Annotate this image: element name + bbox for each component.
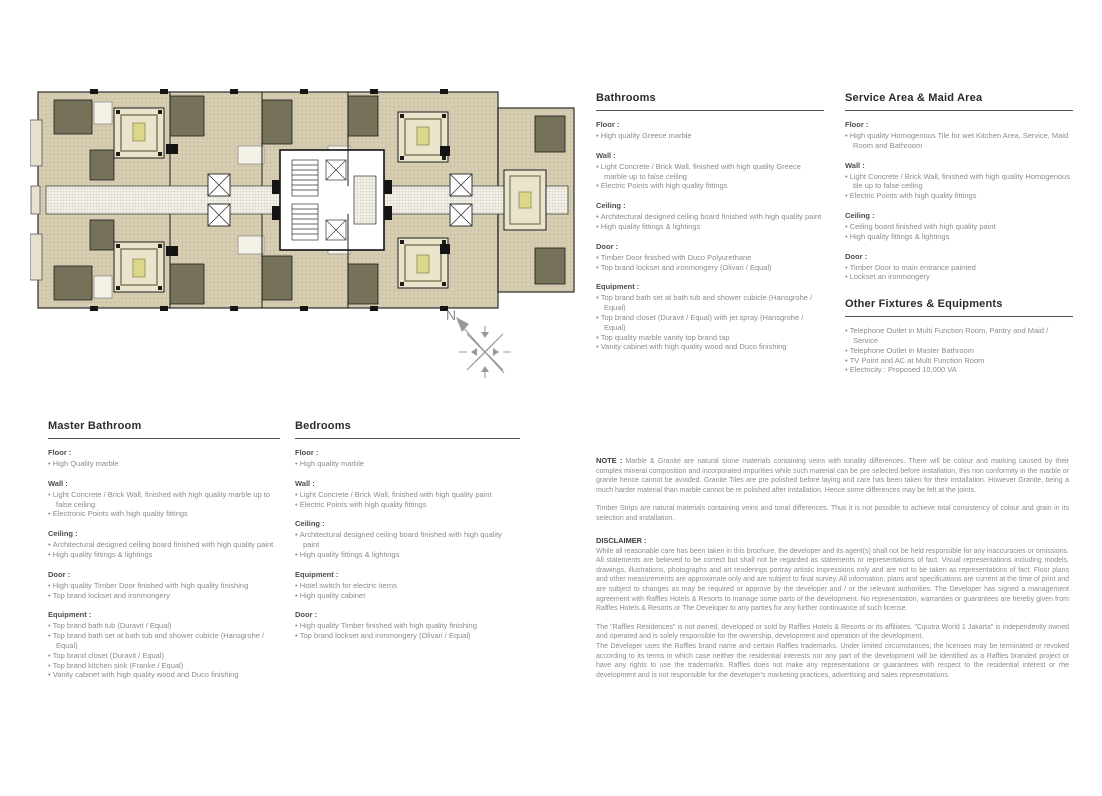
note-label: NOTE : [596,456,622,465]
spec-label: Wall : [48,479,280,489]
spec-item: Vanity cabinet with high quality wood an… [596,342,824,352]
spec-item: High quality fittings & lightings [596,222,824,232]
spec-item: Top brand bath set at bath tub and showe… [596,293,824,313]
spec-group-floor: Floor : High Quality marble [48,448,280,469]
spec-item: High quality fittings & lightings [295,550,520,560]
other-fixtures-title: Other Fixtures & Equipments [845,298,1073,317]
spec-group-door: Door : High quality Timber Door finished… [48,570,280,601]
spec-label: Wall : [295,479,520,489]
spec-item: Lockset an ironmongery [845,272,1073,282]
spec-item: Top brand closet (Duravit / Equal) with … [596,313,824,333]
spec-item: Top brand bath set at bath tub and showe… [48,631,280,651]
spec-item: Electricity : Proposed 10,000 VA [845,365,1073,375]
spec-item: Top brand lockset and ironmongery [48,591,280,601]
spec-item: Top brand closet (Duravit / Equal) [48,651,280,661]
section-bedrooms: Bedrooms Floor : High quality marble Wal… [295,420,520,651]
spec-item: Top brand bath tub (Duravit / Equal) [48,621,280,631]
spec-group-floor: Floor : High quality Greece marble [596,120,824,141]
spec-item: Light Concrete / Brick Wall, finished wi… [845,172,1073,192]
disclaimer-paragraph-3: The Developer uses the Raffles brand nam… [596,642,1069,680]
bathrooms-title: Bathrooms [596,92,824,111]
section-bathrooms: Bathrooms Floor : High quality Greece ma… [596,92,824,362]
note-paragraph-2: Timber Strips are natural materials cont… [596,504,1069,523]
master-bathroom-title: Master Bathroom [48,420,280,439]
spec-group-ceiling: Ceiling : Ceiling board finished with hi… [845,211,1073,242]
spec-item: High quality Timber Door finished with h… [48,581,280,591]
spec-group-equipment: Equipment : Hotel switch for electric it… [295,570,520,601]
spec-group-door: Door : High quality Timber finished with… [295,610,520,641]
service-area-title: Service Area & Maid Area [845,92,1073,111]
compass-icon: N [438,300,524,388]
spec-label: Door : [596,242,824,252]
spec-group-wall: Wall : Light Concrete / Brick Wall, fini… [596,151,824,191]
spec-group-door: Door : Timber Door to main entrance pain… [845,252,1073,283]
spec-group-floor: Floor : High quality marble [295,448,520,469]
spec-item: Top brand lockset and ironmongery (Oliva… [295,631,520,641]
spec-label: Ceiling : [295,519,520,529]
spec-label: Floor : [48,448,280,458]
spec-group-wall: Wall : Light Concrete / Brick Wall, fini… [295,479,520,510]
spec-item: Light Concrete / Brick Wall, finished wi… [596,162,824,182]
note-text: Marble & Granite are natural stone mater… [596,458,1069,494]
spec-label: Ceiling : [48,529,280,539]
spec-item: Top brand kitchen sink (Franke / Equal) [48,661,280,671]
spec-item: Vanity cabinet with high quality wood an… [48,670,280,680]
spec-item: High quality Timber finished with high q… [295,621,520,631]
spec-item: High quality Homogenous Tile for wet Kit… [845,131,1073,151]
spec-group-ceiling: Ceiling : Architectural designed ceiling… [48,529,280,560]
spec-group-ceiling: Ceiling : Architectural designed ceiling… [295,519,520,559]
spec-group-equipment: Equipment : Top brand bath set at bath t… [596,282,824,352]
spec-item: High quality marble [295,459,520,469]
spec-item: Architectural designed ceiling board fin… [295,530,520,550]
spec-group-wall: Wall : Light Concrete / Brick Wall, fini… [48,479,280,519]
spec-item: Top quality marble vanity top brand tap [596,333,824,343]
spec-label: Ceiling : [596,201,824,211]
spec-label: Wall : [596,151,824,161]
disclaimer-label: DISCLAIMER : [596,536,1069,545]
spec-group-equipment: Equipment : Top brand bath tub (Duravit … [48,610,280,680]
compass-north-label: N [446,307,456,323]
spec-item: Ceiling board finished with high quality… [845,222,1073,232]
spec-item: Electric Points with high quality fittin… [295,500,520,510]
spec-item: Hotel switch for electric items [295,581,520,591]
spec-group-floor: Floor : High quality Homogenous Tile for… [845,120,1073,151]
spec-group-ceiling: Ceiling : Architectural designed ceiling… [596,201,824,232]
spec-label: Ceiling : [845,211,1073,221]
spec-label: Equipment : [596,282,824,292]
spec-label: Door : [295,610,520,620]
spec-item: High quality fittings & lightings [845,232,1073,242]
spec-label: Equipment : [48,610,280,620]
spec-group-other-fixtures: Telephone Outlet in Multi Function Room,… [845,326,1073,375]
spec-item: High Quality marble [48,459,280,469]
spec-label: Floor : [845,120,1073,130]
spec-group-wall: Wall : Light Concrete / Brick Wall, fini… [845,161,1073,201]
spec-item: Architectural designed ceiling board fin… [48,540,280,550]
spec-label: Equipment : [295,570,520,580]
spec-item: High quality fittings & lightings [48,550,280,560]
spec-item: Timber Door finished with Duco Polyureth… [596,253,824,263]
spec-item: High quality cabinet [295,591,520,601]
spec-item: Electronic Points with high quality fitt… [48,509,280,519]
spec-item: High quality Greece marble [596,131,824,141]
spec-item: Telephone Outlet in Master Bathroom [845,346,1073,356]
disclaimer-paragraph-1: While all reasonable care has been taken… [596,547,1069,614]
notes-block: NOTE : Marble & Granite are natural ston… [596,456,1069,689]
note-paragraph: NOTE : Marble & Granite are natural ston… [596,456,1069,495]
spec-item: Telephone Outlet in Multi Function Room,… [845,326,1073,346]
spec-label: Door : [48,570,280,580]
bedrooms-title: Bedrooms [295,420,520,439]
spec-item: Architectural designed ceiling board fin… [596,212,824,222]
spec-item: Light Concrete / Brick Wall, finished wi… [295,490,520,500]
spec-label: Floor : [596,120,824,130]
spec-item: Electric Points with high quality fittin… [845,191,1073,201]
spec-item: TV Point and AC at Multi Function Room [845,356,1073,366]
spec-label: Door : [845,252,1073,262]
spec-item: Electric Points with high quality fittin… [596,181,824,191]
spec-group-door: Door : Timber Door finished with Duco Po… [596,242,824,273]
spec-item: Light Concrete / Brick Wall, finished wi… [48,490,280,510]
section-service-area: Service Area & Maid Area Floor : High qu… [845,92,1073,385]
spec-label: Wall : [845,161,1073,171]
brochure-page: { "plan": { "compass_label": "N", "color… [0,0,1102,796]
spec-label: Floor : [295,448,520,458]
floor-plan-image [30,86,582,314]
disclaimer-paragraph-2: The "Raffles Residences" is not owned, d… [596,623,1069,642]
spec-item: Top brand lockset and ironmongery (Oliva… [596,263,824,273]
spec-item: Timber Door to main entrance painted [845,263,1073,273]
section-master-bathroom: Master Bathroom Floor : High Quality mar… [48,420,280,690]
